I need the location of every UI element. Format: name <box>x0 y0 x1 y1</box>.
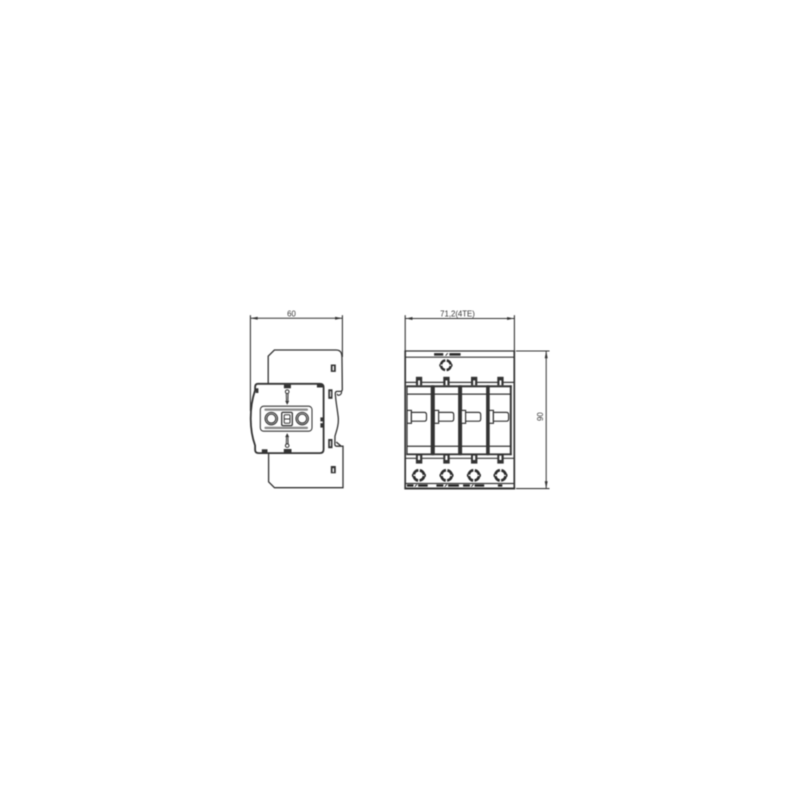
svg-text:60: 60 <box>287 309 296 318</box>
svg-text:71,2(4TE): 71,2(4TE) <box>440 310 475 319</box>
svg-text:90: 90 <box>536 412 545 421</box>
